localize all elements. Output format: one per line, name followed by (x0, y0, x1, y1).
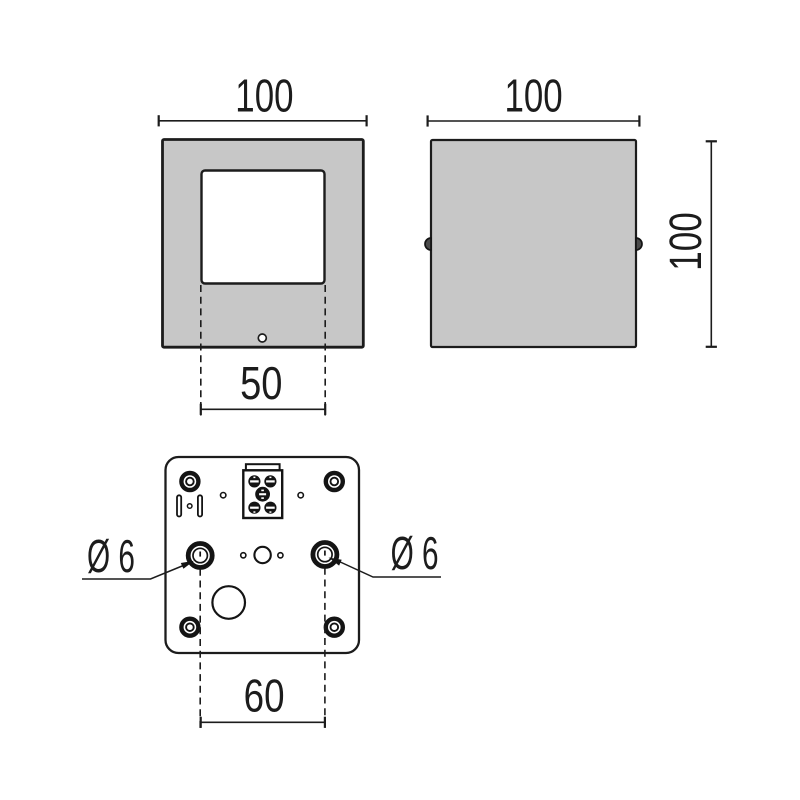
svg-text:100: 100 (660, 212, 711, 271)
svg-text:100: 100 (235, 70, 293, 122)
svg-text:Ø 6: Ø 6 (87, 532, 135, 583)
svg-text:60: 60 (244, 670, 285, 722)
svg-text:Ø 6: Ø 6 (391, 529, 439, 580)
svg-text:50: 50 (240, 358, 282, 409)
svg-text:100: 100 (505, 70, 563, 122)
